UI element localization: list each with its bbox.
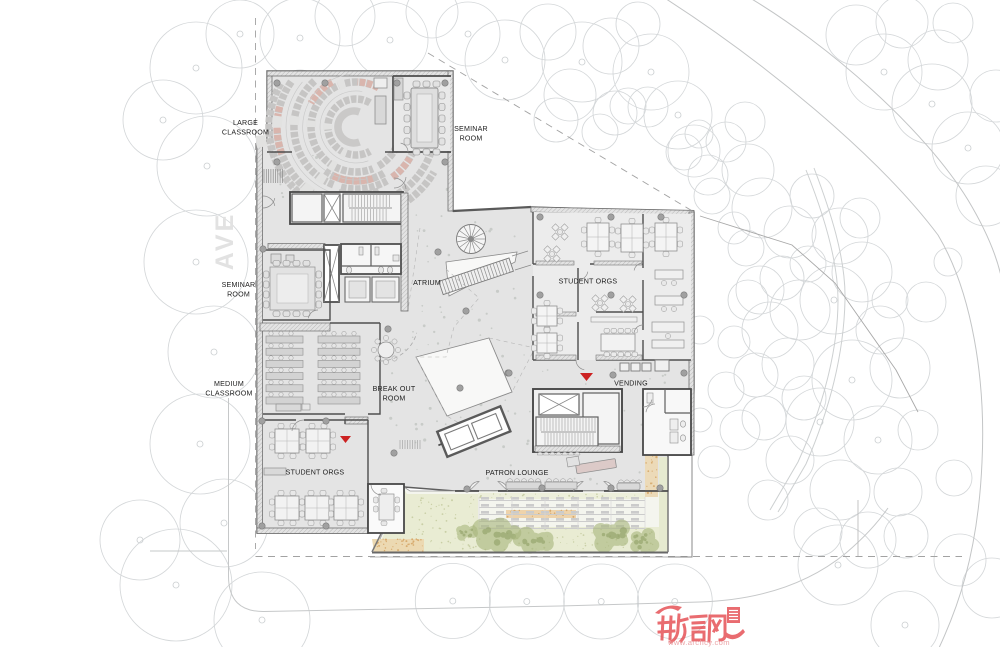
svg-text:LARGE: LARGE bbox=[233, 119, 258, 127]
svg-text:ROOM: ROOM bbox=[383, 395, 406, 403]
svg-text:BREAK OUT: BREAK OUT bbox=[373, 385, 416, 393]
svg-text:PATRON LOUNGE: PATRON LOUNGE bbox=[485, 469, 548, 477]
svg-text:ROOM: ROOM bbox=[460, 135, 483, 143]
svg-text:CLASSROOM: CLASSROOM bbox=[205, 390, 252, 398]
svg-text:CLASSROOM: CLASSROOM bbox=[222, 129, 269, 137]
svg-text:STUDENT ORGS: STUDENT ORGS bbox=[559, 278, 618, 286]
svg-text:SEMINAR: SEMINAR bbox=[222, 281, 256, 289]
svg-text:STUDENT ORGS: STUDENT ORGS bbox=[286, 469, 345, 477]
svg-text:ATRIUM: ATRIUM bbox=[413, 279, 441, 287]
svg-text:www.archcy.com: www.archcy.com bbox=[667, 638, 730, 647]
svg-text:SEMINAR: SEMINAR bbox=[454, 125, 488, 133]
svg-text:MEDIUM: MEDIUM bbox=[214, 380, 244, 388]
svg-text:ROOM: ROOM bbox=[227, 291, 250, 299]
svg-text:VENDING: VENDING bbox=[614, 380, 648, 388]
svg-text:AVE: AVE bbox=[211, 212, 239, 271]
